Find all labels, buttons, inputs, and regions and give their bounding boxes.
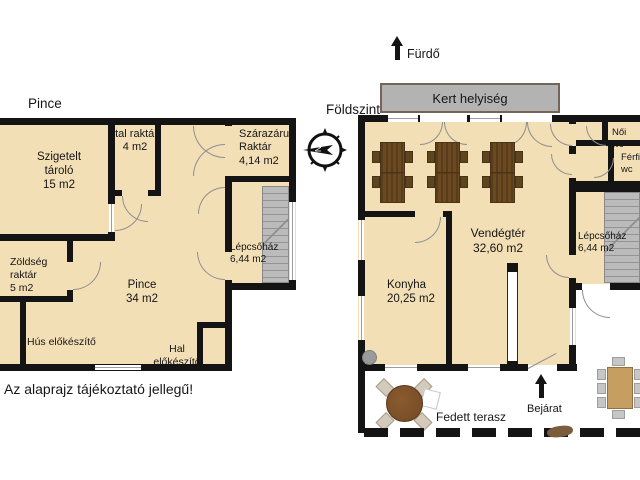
wall-segment: [197, 322, 232, 328]
room-divider-wall: [507, 263, 518, 370]
room-label-fedett-terasz: Fedett terasz: [436, 410, 506, 425]
window: [385, 365, 417, 370]
wall-segment: [108, 190, 122, 196]
room-label-ferfi-wc: Férfi wc: [621, 152, 640, 175]
arrow-shaft: [539, 383, 544, 398]
wall-segment: [67, 241, 73, 262]
room-name: Pince: [128, 279, 157, 291]
terrace-rect-table: [596, 354, 640, 422]
terrace-round-table: [377, 378, 433, 430]
room-area: 6,44 m2: [578, 243, 614, 254]
wall-segment: [358, 115, 365, 220]
wall-segment: [569, 283, 582, 290]
wall-segment: [0, 296, 73, 302]
table-top: [607, 367, 633, 409]
wall-segment: [0, 118, 296, 125]
dining-table-2: [427, 142, 468, 203]
room-label-szigetelt: Szigetelt tároló 15 m2: [26, 150, 92, 192]
window: [95, 365, 141, 370]
wall-segment: [569, 345, 576, 371]
room-label-hus: Hús előkészítő: [27, 336, 96, 349]
wall-segment: [20, 302, 26, 364]
room-label-szarazaru: Szárazáru Raktár 4,14 m2: [239, 128, 293, 168]
terrace-post-wall: [364, 428, 640, 437]
wall-segment: [417, 364, 468, 371]
disclaimer-text: Az alaprajz tájékoztató jellegű!: [4, 381, 193, 398]
direction-label-furdo: Fürdő: [407, 47, 440, 62]
room-label-noi-wc: Női wc: [612, 127, 640, 150]
window: [468, 365, 500, 370]
window: [570, 308, 575, 345]
garden-room-label: Kert helyiség: [432, 91, 507, 106]
room-name: Férfi wc: [621, 152, 640, 175]
room-area: 20,25 m2: [387, 293, 435, 305]
room-area: 34 m2: [126, 293, 158, 305]
room-name: Ital raktár: [112, 128, 158, 140]
wall-segment: [569, 115, 576, 124]
wall-segment: [225, 280, 232, 290]
room-name: Lépcsőház: [230, 242, 278, 253]
wall-segment: [576, 186, 640, 192]
compass-north-letter: N: [314, 146, 323, 152]
room-label-pince: Pince 34 m2: [112, 278, 172, 306]
window: [359, 220, 364, 260]
basement-title: Pince: [28, 96, 62, 112]
window: [359, 296, 364, 340]
window: [290, 202, 295, 280]
room-label-hal: Hal előkészítő: [150, 343, 204, 369]
window: [388, 116, 418, 121]
wall-segment: [358, 364, 385, 371]
wall-segment: [569, 178, 576, 255]
room-label-lepcsohaz-basement: Lépcsőház 6,44 m2: [230, 242, 288, 266]
room-area: 4 m2: [123, 141, 147, 153]
kitchen-fixture-circle: [362, 350, 377, 365]
entrance-label: Bejárat: [527, 403, 562, 416]
door-arc: [582, 290, 610, 318]
room-label-lepcsohaz-ground: Lépcsőház 6,44 m2: [578, 231, 636, 255]
room-label-konyha: Konyha 20,25 m2: [387, 278, 457, 306]
dining-table-3: [482, 142, 523, 203]
floorplan-canvas: Kert helyiség Pince Földszint Fürdő N Sz…: [0, 0, 640, 480]
table-top: [380, 142, 405, 203]
wall-segment: [358, 211, 415, 217]
room-label-zoldseg: Zöldség raktár 5 m2: [10, 256, 56, 294]
window: [109, 204, 114, 232]
arrow-shaft: [395, 45, 400, 60]
pulled-out-chair: [420, 388, 441, 410]
wall-segment: [610, 283, 640, 290]
room-area: 5 m2: [10, 282, 33, 294]
wall-segment: [225, 283, 296, 290]
room-name: Lépcsőház: [578, 231, 626, 242]
room-label-vendegter: Vendégtér 32,60 m2: [448, 226, 548, 255]
wall-segment: [148, 190, 161, 196]
room-name: Szigetelt tároló: [37, 151, 81, 177]
room-area: 4,14 m2: [239, 155, 279, 167]
garden-room-box: Kert helyiség: [380, 83, 560, 113]
wall-segment: [552, 115, 640, 122]
wall-segment: [225, 290, 232, 371]
room-name: Konyha: [387, 279, 426, 291]
window: [470, 116, 500, 121]
room-area: 32,60 m2: [473, 241, 523, 255]
room-name: Zöldség raktár: [10, 256, 47, 281]
groundfloor-title: Földszint: [326, 102, 380, 118]
room-name: Szárazáru Raktár: [239, 128, 289, 153]
wall-segment: [358, 260, 365, 296]
wall-segment: [225, 118, 232, 126]
room-name: Vendégtér: [471, 226, 526, 240]
room-area: 15 m2: [43, 179, 75, 191]
room-name: Hal előkészítő: [153, 343, 200, 368]
compass-rose-icon: N: [301, 126, 349, 174]
wall-segment: [0, 234, 115, 241]
table-top: [386, 385, 423, 422]
room-area: 6,44 m2: [230, 254, 266, 265]
basement-stairs: [262, 186, 289, 283]
wall-segment: [500, 115, 502, 122]
wall-segment: [569, 146, 576, 154]
dining-table-1: [372, 142, 413, 203]
table-top: [490, 142, 515, 203]
table-top: [435, 142, 460, 203]
wall-segment: [418, 115, 420, 122]
room-label-ital: Ital raktár 4 m2: [112, 128, 158, 155]
wall-segment: [225, 176, 232, 252]
wall-segment: [225, 176, 296, 182]
